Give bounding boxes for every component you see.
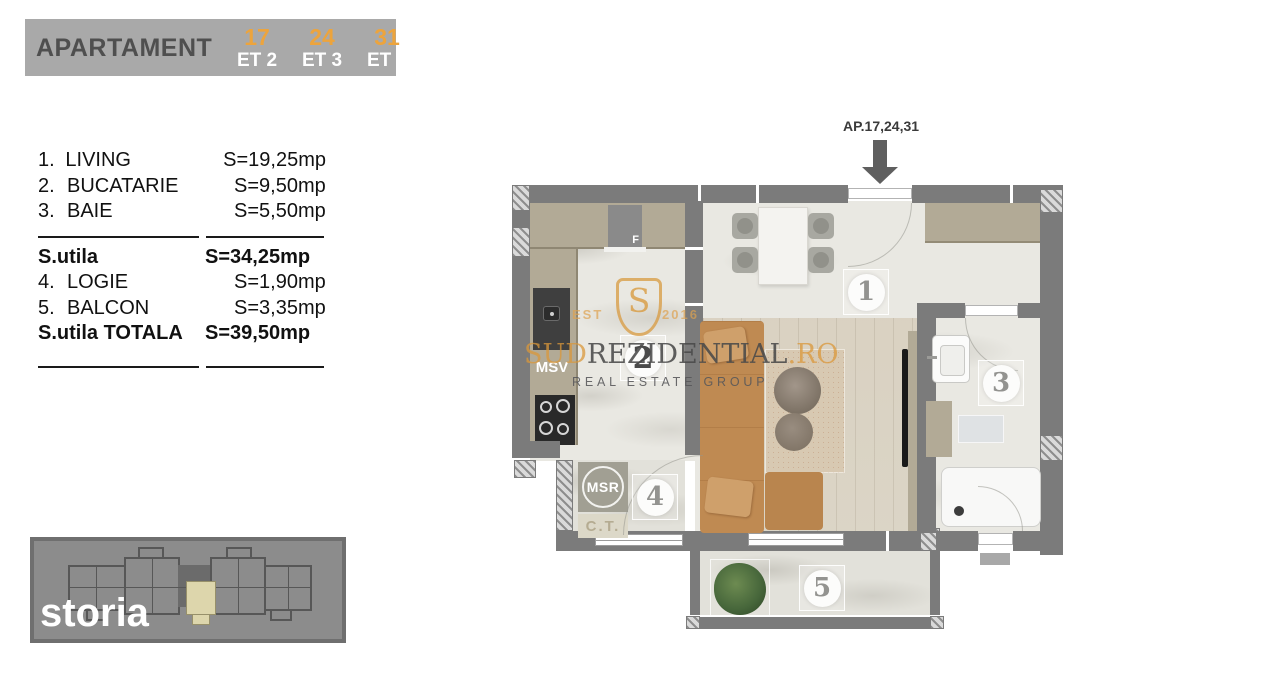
living-window [748,533,844,546]
structural-column [512,227,530,257]
room-row-balcon: 5. BALCON S=3,35mp [38,296,326,322]
shower-door-leaf [978,533,1013,545]
balcony-post-right [930,551,940,615]
wall-kitchen-bottom [512,441,560,458]
boiler-label: C.T. [578,514,628,538]
cooktop [535,395,575,445]
railing-end [686,616,700,629]
apartment-header-title: APARTAMENT [36,34,212,63]
down-arrow-icon [862,167,898,184]
floor-plan: F MSV [512,183,1063,645]
unit-number: 17 [228,25,286,49]
unit-31: 31 ET 4 [358,25,416,73]
wall-bath-bottom-left [936,531,978,551]
list-divider [38,366,326,368]
wall-left [512,185,530,443]
wall-hall-bath-right [1018,303,1040,318]
room-badge-balcon: 5 [799,565,845,611]
list-divider [38,236,326,238]
unit-floor: ET 4 [358,49,416,73]
bathroom-cabinet [926,401,952,457]
apartment-header: APARTAMENT 17 ET 2 24 ET 3 31 ET 4 [25,19,396,76]
bath-mat [958,415,1004,443]
room-row-baie: 3. BAIE S=5,50mp [38,199,326,225]
wardrobe [925,203,1040,243]
building-locator: storia [30,537,346,643]
floorplan-page: APARTAMENT 17 ET 2 24 ET 3 31 ET 4 1. LI… [0,0,1280,682]
tv [902,349,908,467]
wall-right [1040,185,1063,555]
down-arrow-icon [873,140,887,167]
room-row-logie: 4. LOGIE S=1,90mp [38,270,326,296]
wall-joint [756,185,759,203]
tall-cabinet [533,288,570,350]
sofa-pillow [703,326,749,364]
unit-floor: ET 2 [228,49,286,73]
entrance-door-leaf [848,188,912,199]
washing-machine: MSR [578,462,628,512]
coffee-table [774,367,821,414]
dining-chair [808,247,834,273]
structural-column [512,185,530,211]
highlighted-unit [186,581,216,615]
structural-column [1040,435,1063,461]
bathroom-sink [932,335,970,383]
balcony-post-left [690,551,700,615]
unit-number: 24 [293,25,351,49]
coffee-table-small [775,413,813,451]
dining-chair [732,247,758,273]
unit-24: 24 ET 3 [293,25,351,73]
unit-floor: ET 3 [293,49,351,73]
wall-bath-bottom-right [1013,531,1040,551]
room-row-living: 1. LIVING S=19,25mp [38,148,326,174]
fridge-sill [604,247,646,252]
railing-end [930,616,944,629]
room-badge-bucatarie: 2 [620,335,666,381]
room-area-list: 1. LIVING S=19,25mp 2. BUCATARIE S=9,50m… [38,148,326,375]
washing-machine-label: MSR [582,466,624,508]
storia-watermark: storia [40,591,149,635]
dishwasher-label: MSV [528,359,576,376]
structural-column [1040,189,1063,213]
wall-top-left [512,185,848,203]
room-row-bucatarie: 2. BUCATARIE S=9,50mp [38,174,326,200]
wall-joint [685,247,703,250]
wall-logie-left [556,460,573,531]
wall-joint [1010,185,1013,203]
shower-drain [954,506,964,516]
unit-number: 31 [358,25,416,49]
dining-table [758,207,808,285]
wall-hall-bath-left [923,303,965,318]
room-row-sutila-totala: S.utila TOTALA S=39,50mp [38,321,326,347]
unit-17: 17 ET 2 [228,25,286,73]
appliance-icon [543,306,560,321]
sofa-ottoman [765,472,823,530]
room-badge-baie: 3 [978,360,1024,406]
dining-chair [732,213,758,239]
sofa-pillow [704,476,754,517]
balcony-railing [700,617,930,629]
plant [714,563,766,615]
room-badge-logie: 4 [632,474,678,520]
apartment-pointer-label: AP.17,24,31 [843,118,919,134]
dining-chair [808,213,834,239]
structural-column [514,460,536,478]
wall-joint [685,303,703,306]
tv-panel [908,331,917,531]
exterior-step [980,553,1010,565]
fridge-label: F [632,234,639,246]
bathroom-door-leaf [965,305,1018,316]
room-row-sutila: S.utila S=34,25mp [38,245,326,271]
room-badge-living: 1 [843,269,889,315]
wall-joint [886,531,889,551]
fridge-box: F [608,205,642,247]
